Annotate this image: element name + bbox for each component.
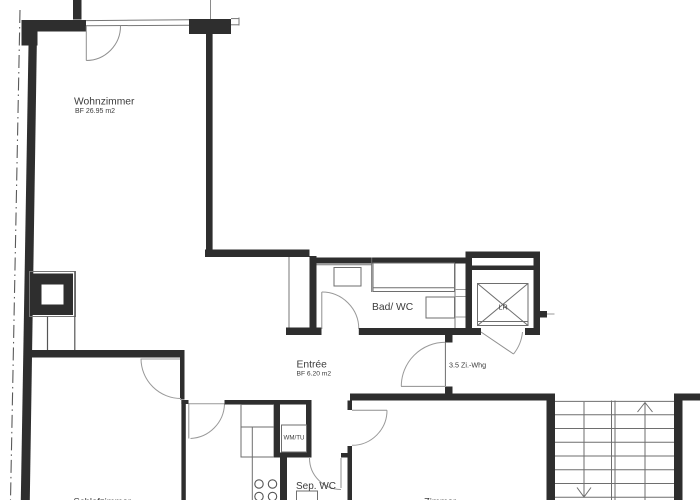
svg-text:BF 6.20 m2: BF 6.20 m2 xyxy=(297,371,332,378)
svg-text:LR: LR xyxy=(499,303,508,312)
svg-text:Schlafzimmer: Schlafzimmer xyxy=(74,497,132,500)
svg-text:3.5 Zi.-Whg: 3.5 Zi.-Whg xyxy=(449,361,486,370)
svg-text:Bad/ WC: Bad/ WC xyxy=(372,302,414,313)
svg-text:BF 26.95 m2: BF 26.95 m2 xyxy=(75,108,115,115)
svg-text:Sep. WC: Sep. WC xyxy=(296,481,336,492)
svg-text:WM/TU: WM/TU xyxy=(284,435,305,442)
svg-text:Wohnzimmer: Wohnzimmer xyxy=(74,96,135,107)
svg-text:Entrée: Entrée xyxy=(297,360,328,371)
svg-text:Zimmer: Zimmer xyxy=(424,497,456,500)
